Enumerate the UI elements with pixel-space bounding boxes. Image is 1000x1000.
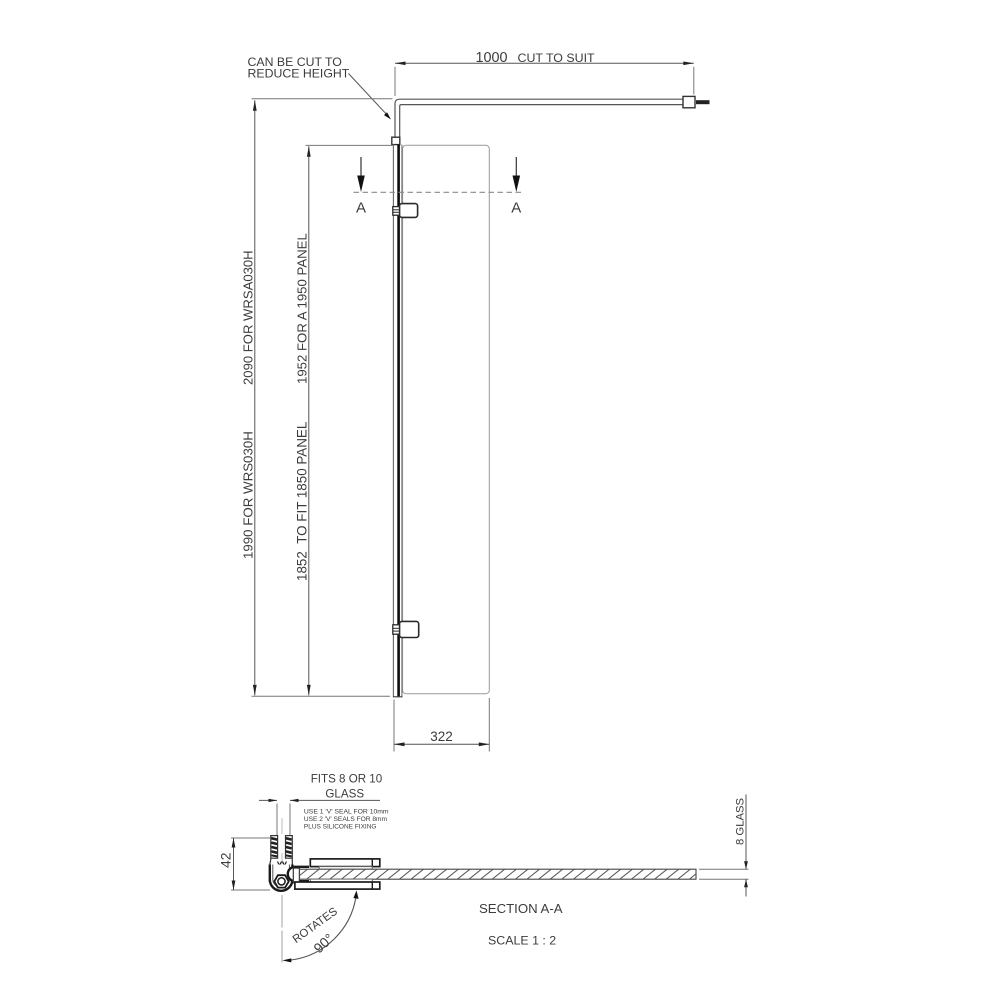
svg-text:A: A	[356, 200, 366, 217]
svg-text:A: A	[511, 200, 521, 217]
svg-text:REDUCE HEIGHT: REDUCE HEIGHT	[248, 67, 350, 81]
svg-text:322: 322	[430, 729, 453, 744]
svg-text:8 GLASS: 8 GLASS	[735, 797, 747, 845]
svg-text:FITS 8 OR 10: FITS 8 OR 10	[311, 773, 383, 786]
svg-text:2090 FOR WRSA030H: 2090 FOR WRSA030H	[241, 250, 256, 385]
svg-text:42: 42	[218, 852, 234, 868]
svg-text:1952 FOR A 1950 PANEL: 1952 FOR A 1950 PANEL	[294, 233, 309, 384]
svg-text:SECTION A-A: SECTION A-A	[479, 901, 563, 916]
svg-text:USE 2 'V' SEALS FOR 8mm: USE 2 'V' SEALS FOR 8mm	[304, 816, 388, 823]
svg-text:PLUS SILICONE FIXING: PLUS SILICONE FIXING	[304, 824, 377, 831]
svg-text:1852 TO FIT 1850 PANEL: 1852 TO FIT 1850 PANEL	[294, 422, 309, 581]
svg-text:1990 FOR WRS030H: 1990 FOR WRS030H	[241, 431, 256, 559]
svg-text:1000: 1000	[476, 50, 508, 66]
svg-text:USE 1 'V' SEAL FOR 10mm: USE 1 'V' SEAL FOR 10mm	[304, 809, 389, 816]
svg-text:SCALE 1 : 2: SCALE 1 : 2	[488, 933, 556, 947]
svg-text:CUT TO SUIT: CUT TO SUIT	[518, 51, 596, 65]
svg-text:GLASS: GLASS	[325, 788, 364, 801]
